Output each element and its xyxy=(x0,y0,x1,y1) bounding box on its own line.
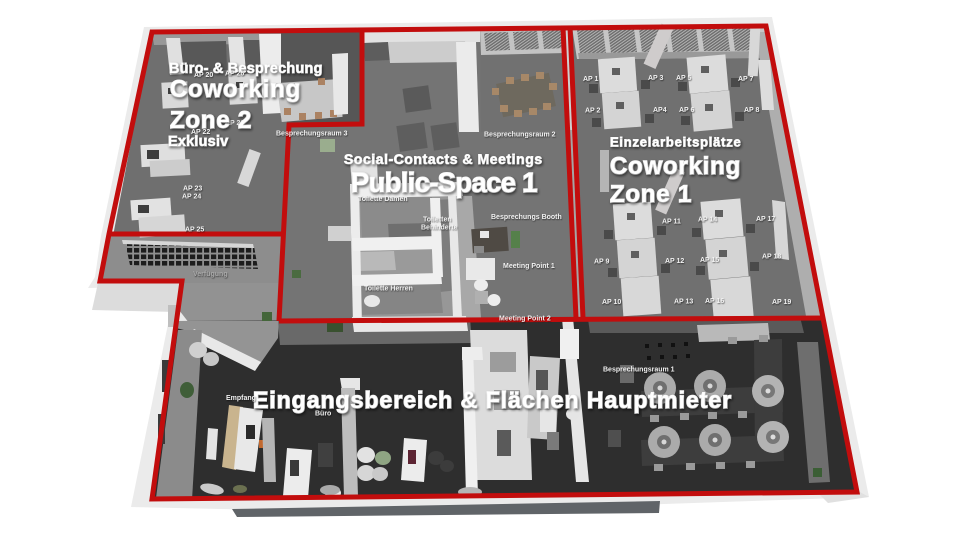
svg-text:Meeting Point 1: Meeting Point 1 xyxy=(503,263,555,270)
svg-text:Public-Space 1: Public-Space 1 xyxy=(351,167,537,198)
svg-text:AP 16: AP 16 xyxy=(705,298,724,305)
svg-text:Besprechungsraum 2: Besprechungsraum 2 xyxy=(484,132,556,139)
svg-text:Zone 2: Zone 2 xyxy=(170,107,252,134)
svg-text:Besprechungsraum 3: Besprechungsraum 3 xyxy=(276,131,348,138)
svg-text:Behinderte: Behinderte xyxy=(421,225,458,232)
svg-text:Exklusiv: Exklusiv xyxy=(168,134,228,150)
svg-text:Toilette Damen: Toilette Damen xyxy=(358,196,408,203)
svg-text:AP 6: AP 6 xyxy=(679,107,695,114)
svg-text:AP 17: AP 17 xyxy=(756,216,775,223)
svg-text:Toilette Herren: Toilette Herren xyxy=(364,286,413,293)
svg-text:AP 13: AP 13 xyxy=(674,299,693,306)
svg-text:AP 25: AP 25 xyxy=(185,227,204,234)
svg-text:AP 8: AP 8 xyxy=(744,107,760,114)
svg-text:AP 24: AP 24 xyxy=(182,193,201,200)
svg-text:AP4: AP4 xyxy=(653,107,667,114)
svg-text:AP 5: AP 5 xyxy=(676,75,692,82)
svg-text:AP 23: AP 23 xyxy=(183,186,202,193)
svg-text:Empfang: Empfang xyxy=(226,395,256,402)
svg-text:AP 26: AP 26 xyxy=(225,71,244,78)
svg-text:AP 9: AP 9 xyxy=(594,259,610,266)
svg-text:Coworking: Coworking xyxy=(610,153,741,180)
svg-text:AP 19: AP 19 xyxy=(772,299,791,306)
svg-text:Zone 1: Zone 1 xyxy=(610,181,692,208)
svg-text:AP 20: AP 20 xyxy=(194,72,213,79)
svg-text:Social-Contacts & Meetings: Social-Contacts & Meetings xyxy=(344,151,543,167)
svg-text:Einzelarbeitsplätze: Einzelarbeitsplätze xyxy=(610,135,741,150)
svg-text:AP 14: AP 14 xyxy=(698,217,717,224)
svg-text:AP 15: AP 15 xyxy=(700,257,719,264)
svg-text:Büro- & Besprechung: Büro- & Besprechung xyxy=(169,61,323,77)
svg-text:AP 22: AP 22 xyxy=(191,129,210,136)
svg-text:AP 11: AP 11 xyxy=(662,219,681,226)
svg-text:AP 10: AP 10 xyxy=(602,299,621,306)
svg-text:Verfügung: Verfügung xyxy=(193,271,228,278)
svg-text:AP 12: AP 12 xyxy=(665,258,684,265)
svg-text:AP 2: AP 2 xyxy=(585,108,601,115)
svg-text:Coworking: Coworking xyxy=(170,76,301,103)
svg-text:AP 3: AP 3 xyxy=(648,75,664,82)
svg-text:Besprechungsraum 1: Besprechungsraum 1 xyxy=(603,367,675,374)
svg-text:AP 1: AP 1 xyxy=(583,76,599,83)
svg-text:Toiletten: Toiletten xyxy=(423,217,452,224)
svg-text:AP 7: AP 7 xyxy=(738,76,754,83)
svg-text:Eingangsbereich & Flächen Haup: Eingangsbereich & Flächen Hauptmieter xyxy=(253,387,732,413)
svg-text:Meeting Point 2: Meeting Point 2 xyxy=(499,316,551,323)
svg-text:AP 18: AP 18 xyxy=(762,254,781,261)
svg-text:Besprechungs Booth: Besprechungs Booth xyxy=(491,214,562,221)
svg-text:Büro: Büro xyxy=(315,411,331,418)
